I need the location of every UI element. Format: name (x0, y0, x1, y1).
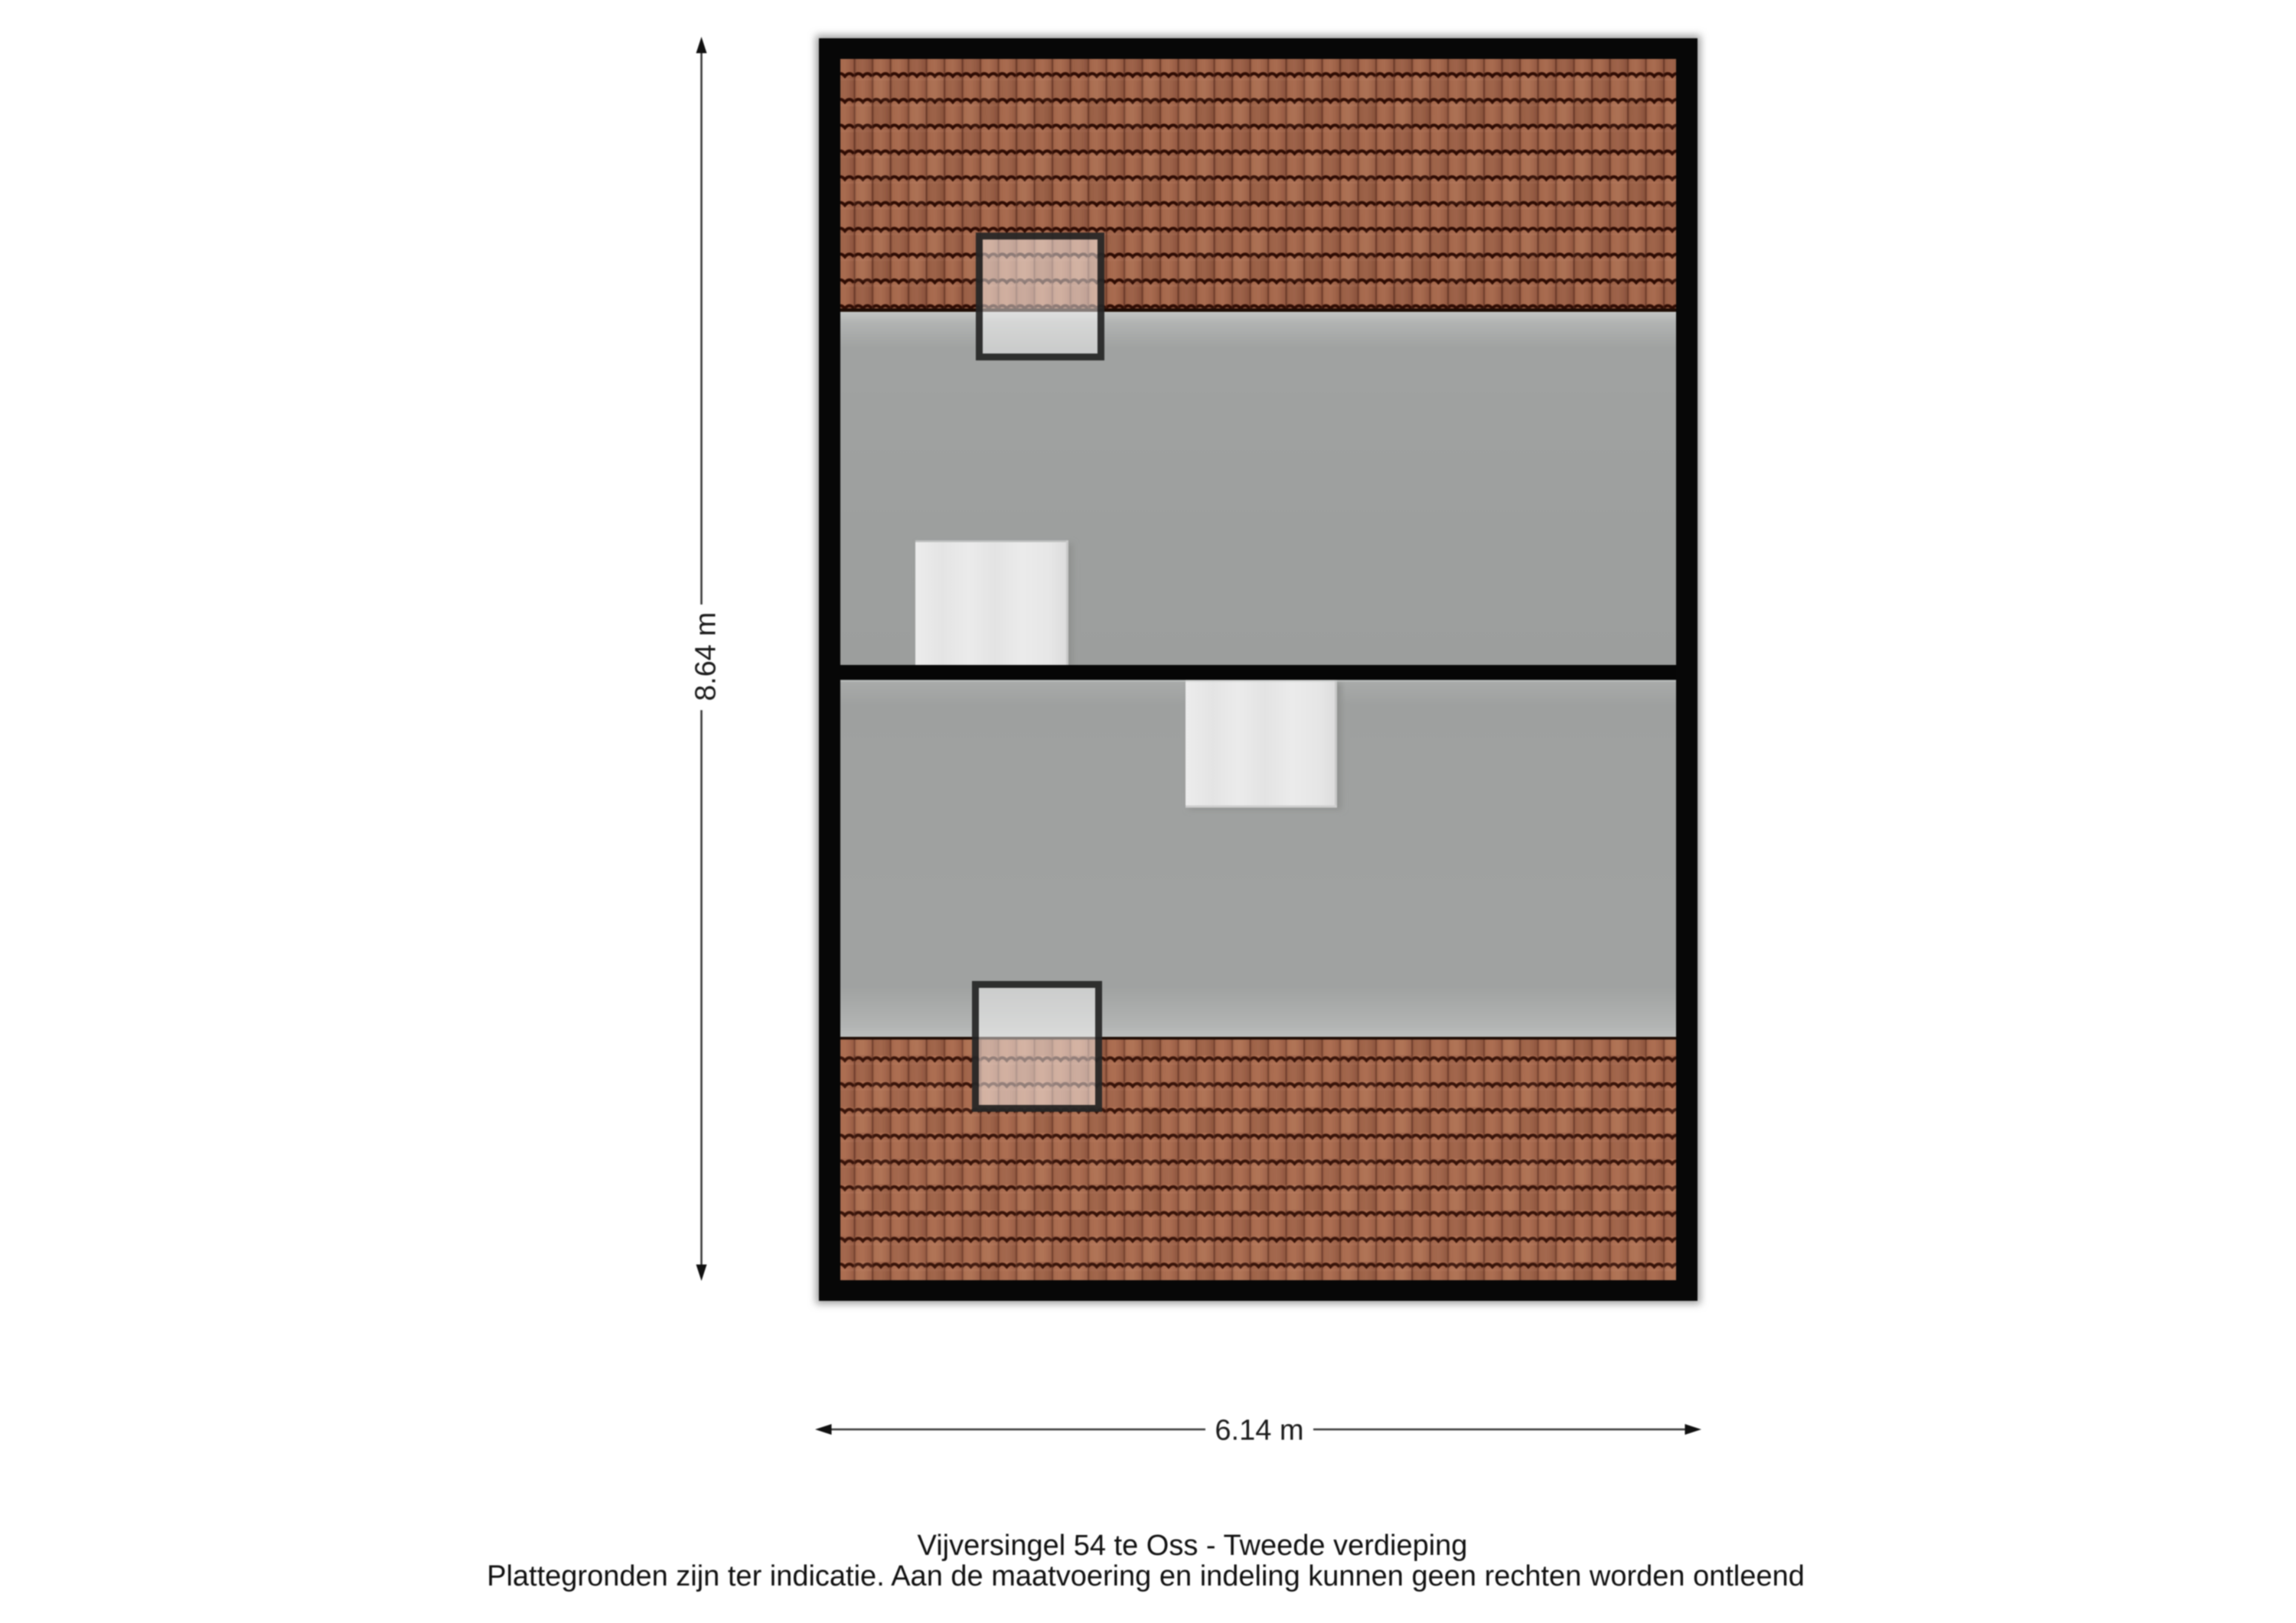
svg-text:8.64 m: 8.64 m (690, 612, 722, 701)
svg-text:Plattegronden zijn ter indicat: Plattegronden zijn ter indicatie. Aan de… (487, 1560, 1805, 1592)
svg-text:6.14 m: 6.14 m (1215, 1415, 1303, 1447)
svg-text:Vijversingel 54 te Oss - Tweed: Vijversingel 54 te Oss - Tweede verdiepi… (918, 1530, 1468, 1562)
